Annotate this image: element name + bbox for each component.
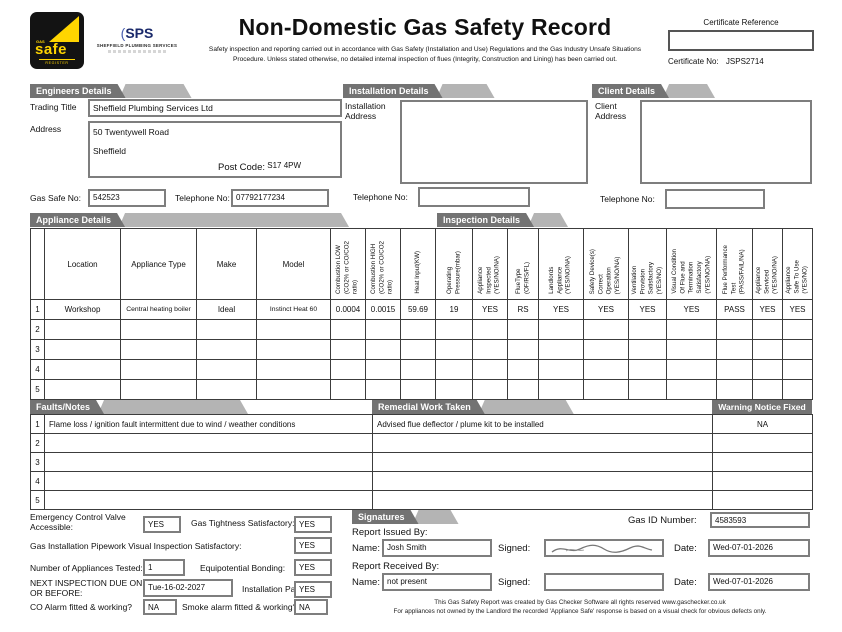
equipotential-label: Equipotential Bonding: bbox=[200, 563, 285, 573]
col-flue-type: FlueType (OF/RS/FL) bbox=[508, 229, 539, 300]
issued-date-label: Date: bbox=[674, 543, 697, 554]
signatures-section: Signatures Gas ID Number: 4583593 Report… bbox=[352, 510, 812, 600]
cell-appliance-serviced: YES bbox=[753, 300, 783, 320]
cell-empty bbox=[436, 320, 473, 340]
cell-empty bbox=[121, 340, 197, 360]
appliance-row-4: 4 bbox=[31, 360, 813, 380]
issued-date-field[interactable]: Wed-07-01-2026 bbox=[708, 539, 810, 557]
cell-empty bbox=[366, 360, 401, 380]
fault-row-4: 4 bbox=[31, 472, 813, 491]
cell-combustion-low: 0.0004 bbox=[331, 300, 366, 320]
cell-empty bbox=[753, 360, 783, 380]
installation-details-section: Installation Details Installation Addres… bbox=[343, 84, 590, 98]
gas-safe-no-field[interactable]: 542523 bbox=[88, 189, 166, 207]
fault-row-num: 3 bbox=[31, 453, 45, 472]
cell-flue-type: RS bbox=[508, 300, 539, 320]
cell-empty bbox=[121, 320, 197, 340]
cell-empty bbox=[539, 340, 584, 360]
cell-empty bbox=[197, 320, 257, 340]
cell-empty bbox=[197, 360, 257, 380]
cell-empty bbox=[473, 320, 508, 340]
cell-empty bbox=[401, 360, 436, 380]
cell-empty bbox=[257, 380, 331, 400]
appliances-tested-field[interactable]: 1 bbox=[143, 559, 185, 576]
appliance-row-1: 1 Workshop Central heating boiler Ideal … bbox=[31, 300, 813, 320]
appliance-row-num: 3 bbox=[31, 340, 45, 360]
cell-empty bbox=[629, 340, 667, 360]
footer-line2: For appliances not owned by the Landlord… bbox=[330, 607, 830, 616]
cell-empty bbox=[366, 320, 401, 340]
col-operating-pressure: Operating Pressure(mbar) bbox=[436, 229, 473, 300]
cell-empty bbox=[717, 340, 753, 360]
cell-empty bbox=[197, 380, 257, 400]
cell-empty bbox=[121, 360, 197, 380]
remedial-text bbox=[373, 472, 713, 491]
col-make: Make bbox=[197, 229, 257, 300]
cell-appliance-type: Central heating boiler bbox=[121, 300, 197, 320]
fault-text bbox=[45, 453, 373, 472]
issued-signed-field[interactable] bbox=[544, 539, 664, 557]
cell-empty bbox=[753, 320, 783, 340]
cell-model: Instinct Heat 60 bbox=[257, 300, 331, 320]
appliances-tested-label: Number of Appliances Tested: bbox=[30, 563, 143, 573]
cell-empty bbox=[717, 380, 753, 400]
installation-pass-field[interactable]: YES bbox=[294, 581, 332, 598]
cell-empty bbox=[331, 380, 366, 400]
appliance-details-section: Appliance Details Inspection Details Loc… bbox=[30, 213, 812, 227]
received-name-field[interactable]: not present bbox=[382, 573, 492, 591]
gas-id-field[interactable]: 4583593 bbox=[710, 512, 810, 528]
report-issued-by-label: Report Issued By: bbox=[352, 527, 428, 538]
installation-telephone-label: Telephone No: bbox=[353, 192, 408, 202]
issued-name-label: Name: bbox=[352, 543, 380, 554]
engineers-details-header-ext bbox=[120, 84, 192, 98]
inspection-details-header-ext bbox=[528, 213, 568, 227]
installation-address-field[interactable] bbox=[400, 100, 588, 184]
sps-tagline-illegible bbox=[108, 50, 166, 53]
installation-details-header: Installation Details bbox=[343, 84, 443, 98]
cell-empty bbox=[783, 380, 813, 400]
cell-empty bbox=[584, 320, 629, 340]
cell-operating-pressure: 19 bbox=[436, 300, 473, 320]
cell-empty bbox=[508, 320, 539, 340]
smoke-alarm-label: Smoke alarm fitted & working? bbox=[182, 602, 297, 612]
cell-combustion-high: 0.0015 bbox=[366, 300, 401, 320]
next-inspection-label: NEXT INSPECTION DUE ON OR BEFORE: bbox=[30, 578, 142, 598]
cell-empty bbox=[539, 360, 584, 380]
cell-empty bbox=[584, 360, 629, 380]
installation-telephone-field[interactable] bbox=[418, 187, 530, 207]
gas-safe-safe-text: safe bbox=[35, 41, 67, 58]
engineer-telephone-field[interactable]: 07792177234 bbox=[231, 189, 329, 207]
col-num bbox=[31, 229, 45, 300]
appliance-row-num: 2 bbox=[31, 320, 45, 340]
fault-row-num: 4 bbox=[31, 472, 45, 491]
trading-title-label: Trading Title bbox=[30, 102, 76, 112]
client-details-header-ext bbox=[663, 84, 715, 98]
col-model: Model bbox=[257, 229, 331, 300]
co-alarm-field[interactable]: NA bbox=[143, 599, 177, 615]
fault-text bbox=[45, 472, 373, 491]
cell-empty bbox=[584, 340, 629, 360]
cell-empty bbox=[539, 380, 584, 400]
col-safety-devices: Safety Device(s) Correct Operation (YES/… bbox=[584, 229, 629, 300]
cell-empty bbox=[508, 340, 539, 360]
cell-empty bbox=[257, 320, 331, 340]
engineers-details-section: Engineers Details Trading Title Sheffiel… bbox=[30, 84, 342, 98]
engineer-address-line2: Sheffield bbox=[93, 146, 337, 156]
cell-empty bbox=[473, 340, 508, 360]
cell-empty bbox=[45, 380, 121, 400]
cell-empty bbox=[257, 340, 331, 360]
cell-empty bbox=[401, 340, 436, 360]
cell-empty bbox=[436, 360, 473, 380]
cell-empty bbox=[667, 340, 717, 360]
issued-name-field[interactable]: Josh Smith bbox=[382, 539, 492, 557]
warning-value bbox=[713, 491, 813, 510]
received-signed-label: Signed: bbox=[498, 577, 530, 588]
client-details-section: Client Details Client Address Telephone … bbox=[592, 84, 812, 98]
cell-empty bbox=[783, 360, 813, 380]
appliance-table: Location Appliance Type Make Model Combu… bbox=[30, 228, 813, 400]
col-visual-condition: Visual Condition Of Flue and Termination… bbox=[667, 229, 717, 300]
certificate-no-label: Certificate No: bbox=[668, 57, 719, 66]
gas-safe-register-text: REGISTER bbox=[39, 59, 75, 65]
warning-value bbox=[713, 434, 813, 453]
footer: This Gas Safety Report was created by Ga… bbox=[330, 598, 830, 617]
fault-row-2: 2 bbox=[31, 434, 813, 453]
cell-empty bbox=[366, 340, 401, 360]
gas-tightness-field[interactable]: YES bbox=[294, 516, 332, 533]
ecv-label: Emergency Control Valve Accessible: bbox=[30, 512, 126, 532]
cell-empty bbox=[45, 340, 121, 360]
client-telephone-field[interactable] bbox=[665, 189, 765, 209]
cell-empty bbox=[473, 360, 508, 380]
received-date-field[interactable]: Wed-07-01-2026 bbox=[708, 573, 810, 591]
warning-value: NA bbox=[713, 415, 813, 434]
client-address-field[interactable] bbox=[640, 100, 812, 184]
cell-empty bbox=[121, 380, 197, 400]
received-date-label: Date: bbox=[674, 577, 697, 588]
pipework-label: Gas Installation Pipework Visual Inspect… bbox=[30, 541, 242, 551]
title-block: Non-Domestic Gas Safety Record Safety in… bbox=[190, 14, 660, 65]
col-landlords-appliance: Landlords Appliance (YES/NO/NA) bbox=[539, 229, 584, 300]
cell-empty bbox=[45, 320, 121, 340]
fault-row-num: 2 bbox=[31, 434, 45, 453]
sps-logo: (SPS SHEFFIELD PLUMBING SERVICES bbox=[72, 26, 202, 53]
cell-empty bbox=[629, 320, 667, 340]
col-safe-to-use: Appliance Safe To Use (YES/NO) bbox=[783, 229, 813, 300]
cell-empty bbox=[508, 380, 539, 400]
inspection-details-header-bar: Inspection Details bbox=[437, 213, 568, 227]
cell-flue-performance: PASS bbox=[717, 300, 753, 320]
gas-safety-record-page: GAS safe REGISTER (SPS SHEFFIELD PLUMBIN… bbox=[0, 0, 842, 632]
appliance-table-header-row: Location Appliance Type Make Model Combu… bbox=[31, 229, 813, 300]
cell-empty bbox=[667, 380, 717, 400]
col-flue-performance: Flue Performance Test (PASS/FAIL/NA) bbox=[717, 229, 753, 300]
engineers-details-header: Engineers Details bbox=[30, 84, 126, 98]
cell-empty bbox=[436, 340, 473, 360]
appliance-row-num: 5 bbox=[31, 380, 45, 400]
installation-address-label: Installation Address bbox=[345, 101, 386, 121]
cell-empty bbox=[331, 340, 366, 360]
fault-text: Flame loss / ignition fault intermittent… bbox=[45, 415, 373, 434]
page-subtitle: Safety inspection and reporting carried … bbox=[202, 45, 648, 65]
appliance-details-header: Appliance Details bbox=[30, 213, 125, 227]
cell-empty bbox=[257, 360, 331, 380]
signatures-header-ext bbox=[413, 510, 459, 524]
cell-empty bbox=[717, 360, 753, 380]
engineer-address-line1: 50 Twentywell Road bbox=[93, 127, 337, 137]
fault-text bbox=[45, 491, 373, 510]
remedial-work-header: Remedial Work Taken bbox=[372, 400, 485, 414]
received-name-label: Name: bbox=[352, 577, 380, 588]
cell-location: Workshop bbox=[45, 300, 121, 320]
remedial-work-header-ext bbox=[479, 400, 574, 414]
cell-empty bbox=[401, 380, 436, 400]
sps-mark: SPS bbox=[125, 25, 153, 41]
certificate-block: Certificate Reference Certificate No: JS… bbox=[668, 18, 814, 66]
gas-tightness-label: Gas Tightness Satisfactory: bbox=[191, 518, 294, 528]
cell-empty bbox=[753, 340, 783, 360]
cell-empty bbox=[629, 380, 667, 400]
installation-details-header-ext bbox=[437, 84, 495, 98]
checks-section: Emergency Control Valve Accessible: YES … bbox=[30, 510, 352, 620]
cell-visual-condition: YES bbox=[667, 300, 717, 320]
certificate-reference-label: Certificate Reference bbox=[668, 18, 814, 27]
inspection-details-header: Inspection Details bbox=[437, 213, 534, 227]
cell-empty bbox=[366, 380, 401, 400]
cell-ventilation: YES bbox=[629, 300, 667, 320]
trading-title-field[interactable]: Sheffield Plumbing Services Ltd bbox=[88, 99, 342, 117]
remedial-text: Advised flue deflector / plume kit to be… bbox=[373, 415, 713, 434]
fault-text bbox=[45, 434, 373, 453]
remedial-text bbox=[373, 453, 713, 472]
cell-make: Ideal bbox=[197, 300, 257, 320]
cell-safety-devices: YES bbox=[584, 300, 629, 320]
co-alarm-label: CO Alarm fitted & working? bbox=[30, 602, 132, 612]
warning-value bbox=[713, 453, 813, 472]
remedial-text bbox=[373, 491, 713, 510]
fault-row-1: 1 Flame loss / ignition fault intermitte… bbox=[31, 415, 813, 434]
cell-empty bbox=[508, 360, 539, 380]
cell-heat-input: 59.69 bbox=[401, 300, 436, 320]
engineer-address-field[interactable]: 50 Twentywell Road Sheffield Post Code: … bbox=[88, 121, 342, 178]
signature-image bbox=[546, 541, 662, 557]
cell-empty bbox=[667, 320, 717, 340]
client-telephone-label: Telephone No: bbox=[600, 194, 655, 204]
gas-safe-no-label: Gas Safe No: bbox=[30, 193, 81, 203]
page-title: Non-Domestic Gas Safety Record bbox=[190, 14, 660, 41]
cell-empty bbox=[331, 360, 366, 380]
col-appliance-serviced: Appliance Serviced (YES/NO/NA) bbox=[753, 229, 783, 300]
cell-empty bbox=[717, 320, 753, 340]
remedial-text bbox=[373, 434, 713, 453]
col-location: Location bbox=[45, 229, 121, 300]
warning-notice-header: Warning Notice Fixed bbox=[712, 400, 812, 414]
post-code-label: Post Code: bbox=[218, 162, 265, 173]
client-details-header: Client Details bbox=[592, 84, 669, 98]
issued-signed-label: Signed: bbox=[498, 543, 530, 554]
signatures-header: Signatures bbox=[352, 510, 419, 524]
fault-row-num: 5 bbox=[31, 491, 45, 510]
appliance-row-2: 2 bbox=[31, 320, 813, 340]
faults-section: Faults/Notes Remedial Work Taken Warning… bbox=[30, 400, 812, 510]
col-appliance-inspected: Appliance Inspected (YES/NO/NA) bbox=[473, 229, 508, 300]
appliance-details-header-ext bbox=[119, 213, 349, 227]
cell-appliance-inspected: YES bbox=[473, 300, 508, 320]
appliance-row-3: 3 bbox=[31, 340, 813, 360]
received-signed-field[interactable] bbox=[544, 573, 664, 591]
appliance-row-num: 4 bbox=[31, 360, 45, 380]
cell-landlords-appliance: YES bbox=[539, 300, 584, 320]
equipotential-field[interactable]: YES bbox=[294, 559, 332, 576]
cell-empty bbox=[584, 380, 629, 400]
warning-value bbox=[713, 472, 813, 491]
cell-empty bbox=[436, 380, 473, 400]
faults-notes-header: Faults/Notes bbox=[30, 400, 104, 414]
report-received-by-label: Report Received By: bbox=[352, 561, 439, 572]
faults-notes-header-ext bbox=[98, 400, 248, 414]
footer-line1: This Gas Safety Report was created by Ga… bbox=[330, 598, 830, 607]
fault-row-num: 1 bbox=[31, 415, 45, 434]
certificate-no-value: JSPS2714 bbox=[726, 57, 764, 66]
certificate-reference-field[interactable] bbox=[668, 30, 814, 51]
cell-empty bbox=[629, 360, 667, 380]
cell-empty bbox=[783, 340, 813, 360]
col-combustion-high: Combustion HIGH (CO2% or CO/CO2 ratio) bbox=[366, 229, 401, 300]
fault-row-5: 5 bbox=[31, 491, 813, 510]
fault-row-3: 3 bbox=[31, 453, 813, 472]
post-code-value: S17 4PW bbox=[267, 161, 301, 170]
col-appliance-type: Appliance Type bbox=[121, 229, 197, 300]
cell-empty bbox=[473, 380, 508, 400]
faults-table: 1 Flame loss / ignition fault intermitte… bbox=[30, 414, 813, 510]
cell-empty bbox=[331, 320, 366, 340]
col-heat-input: Heat Input(KW) bbox=[401, 229, 436, 300]
next-inspection-field[interactable]: Tue-16-02-2027 bbox=[143, 579, 233, 597]
cell-safe-to-use: YES bbox=[783, 300, 813, 320]
engineer-telephone-label: Telephone No: bbox=[175, 193, 230, 203]
client-address-label: Client Address bbox=[595, 101, 626, 121]
col-ventilation: Ventilation Provision Satisfactory (YES/… bbox=[629, 229, 667, 300]
cell-empty bbox=[539, 320, 584, 340]
cell-empty bbox=[401, 320, 436, 340]
cell-empty bbox=[783, 320, 813, 340]
cell-empty bbox=[197, 340, 257, 360]
smoke-alarm-field[interactable]: NA bbox=[294, 599, 328, 615]
cell-empty bbox=[753, 380, 783, 400]
cell-empty bbox=[45, 360, 121, 380]
pipework-field[interactable]: YES bbox=[294, 537, 332, 554]
ecv-field[interactable]: YES bbox=[143, 516, 181, 533]
gas-id-label: Gas ID Number: bbox=[628, 515, 697, 526]
sps-name: SHEFFIELD PLUMBING SERVICES bbox=[72, 43, 202, 48]
cell-empty bbox=[667, 360, 717, 380]
appliance-row-5: 5 bbox=[31, 380, 813, 400]
col-combustion-low: Combustion LOW (CO2% or CO/CO2 ratio) bbox=[331, 229, 366, 300]
appliance-row-num: 1 bbox=[31, 300, 45, 320]
engineer-address-label: Address bbox=[30, 124, 61, 134]
